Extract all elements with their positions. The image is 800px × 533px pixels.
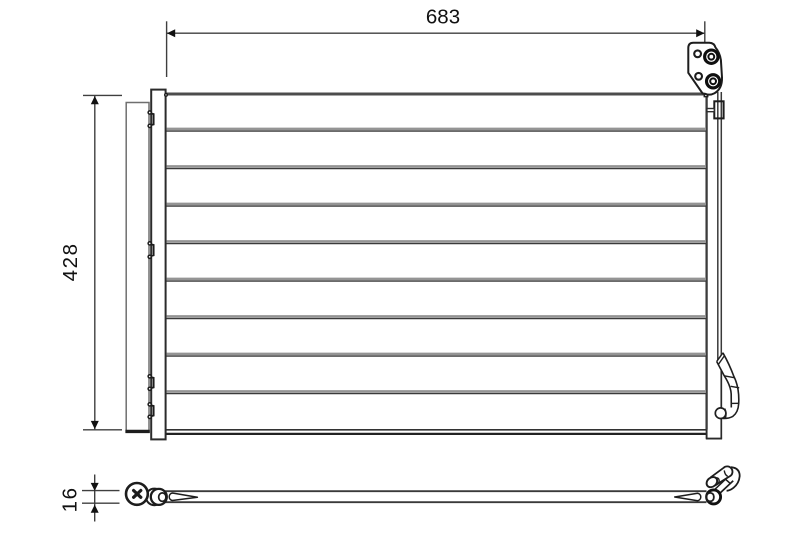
svg-text:683: 683 (426, 6, 460, 29)
svg-text:428: 428 (59, 242, 82, 281)
svg-text:16: 16 (59, 486, 82, 512)
